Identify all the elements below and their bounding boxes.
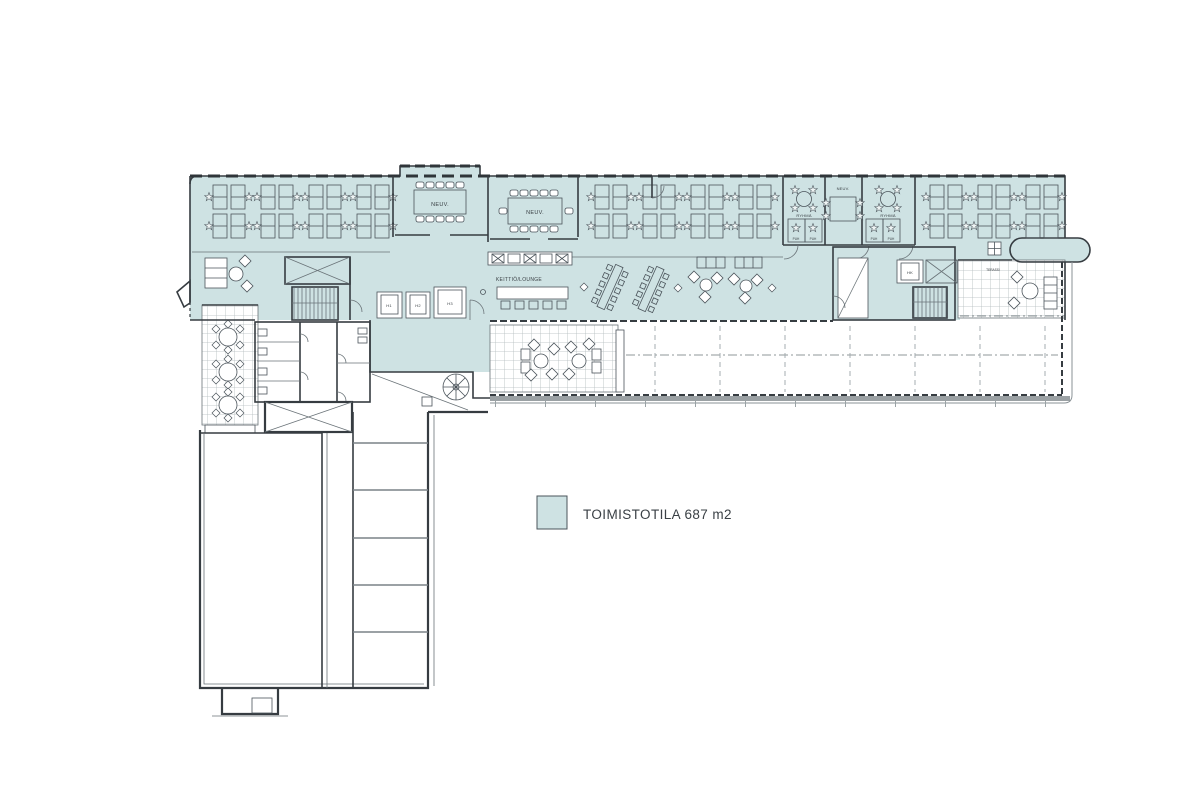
terrace-bench (205, 425, 255, 433)
terrace-screen (616, 330, 624, 392)
legend: TOIMISTOTILA 687 m2 (537, 496, 732, 529)
elevator-3-label: H3 (447, 301, 453, 306)
elevator-1-label: H1 (386, 303, 392, 308)
floor-plan: H1 H2 H3 NEUV. NEUV. (0, 0, 1200, 800)
kitchen-island (497, 287, 568, 299)
booth-label: PUH (810, 237, 817, 241)
room-label-neuv-mid: NEUV. (526, 210, 544, 216)
room-label-neuv-top: NEUV. (431, 202, 449, 208)
terrace-left (202, 305, 258, 433)
elevator-hk-label: HK (907, 270, 913, 275)
wc-block (255, 322, 370, 402)
floor-plan-page: H1 H2 H3 NEUV. NEUV. (0, 0, 1200, 800)
room-label-ryhma-left: RYHMÄ (796, 213, 812, 218)
booth-label: PUH (871, 237, 878, 241)
booth-label: PUH (888, 237, 895, 241)
shaft-lower-left (265, 402, 352, 432)
booth-label: PUH (793, 237, 800, 241)
spiral-stair (443, 374, 469, 400)
lower-wing (200, 412, 434, 716)
room-label-terrace: TERASSI (986, 268, 1000, 272)
room-label-ryhma-right: RYHMÄ (880, 213, 896, 218)
bay-table (988, 242, 1001, 255)
legend-label: TOIMISTOTILA 687 m2 (583, 507, 732, 522)
legend-swatch (537, 496, 567, 529)
room-label-neuv-small: NEUV. (837, 186, 850, 191)
elevator-2-label: H2 (415, 303, 421, 308)
room-label-kitchen: KEITTIÖ/LOUNGE (496, 276, 543, 283)
entry-canopy (177, 281, 190, 307)
